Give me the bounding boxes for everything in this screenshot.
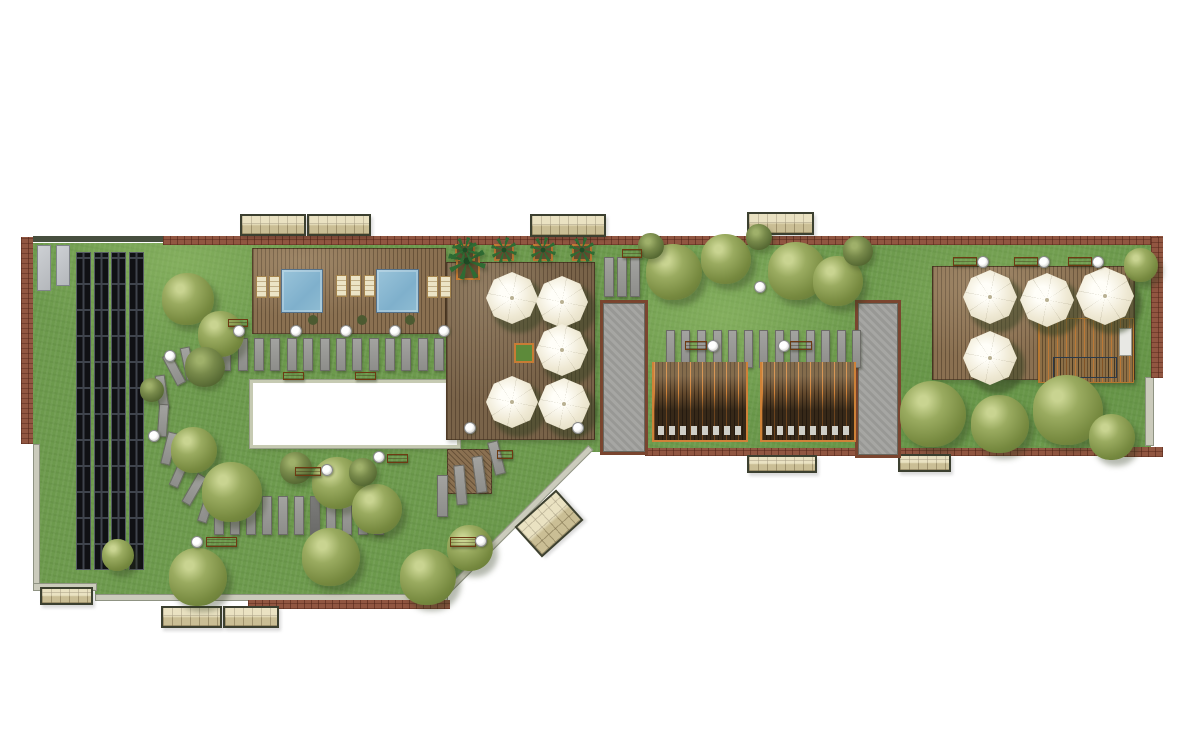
olive-tree <box>202 462 262 522</box>
jacuzzi-pool <box>281 269 323 313</box>
paver <box>270 338 280 371</box>
path-light <box>977 256 989 268</box>
speaker-dot <box>405 315 415 325</box>
olive-tree <box>447 525 493 571</box>
paver <box>401 338 411 371</box>
path-light <box>340 325 352 337</box>
olive-tree <box>971 395 1029 453</box>
olive-tree <box>701 234 751 284</box>
palm-canopy <box>530 237 556 263</box>
olive-tree <box>1089 414 1135 460</box>
roof-terrace-site-plan <box>0 0 1200 750</box>
olive-tree <box>349 458 377 486</box>
paver <box>262 496 272 535</box>
stone-pad <box>747 455 817 473</box>
bench <box>295 467 321 476</box>
olive-tree <box>1124 248 1158 282</box>
paver <box>254 338 264 371</box>
paver <box>617 257 627 297</box>
olive-tree <box>171 427 217 473</box>
path-light <box>438 325 450 337</box>
path-light <box>233 325 245 337</box>
olive-tree <box>185 347 225 387</box>
path-light <box>321 464 333 476</box>
lounger <box>364 275 375 297</box>
bench <box>387 454 408 463</box>
olive-tree <box>302 528 360 586</box>
ramp-panel <box>855 300 901 458</box>
stone-pad <box>898 454 951 472</box>
path-light <box>148 430 160 442</box>
olive-tree <box>352 484 402 534</box>
paver <box>437 475 448 517</box>
dark-edge <box>33 236 163 242</box>
brick-wall <box>21 237 33 444</box>
path-light <box>290 325 302 337</box>
path-light <box>754 281 766 293</box>
path-light <box>164 350 176 362</box>
lounger <box>440 276 451 298</box>
path-light <box>707 340 719 352</box>
paver <box>434 338 444 371</box>
path-edge <box>33 444 40 591</box>
solar-panel <box>76 252 91 570</box>
path-light <box>464 422 476 434</box>
stone-pad <box>530 214 606 237</box>
stone-block-row <box>766 426 850 435</box>
palm-canopy <box>569 237 595 263</box>
path-light <box>373 451 385 463</box>
paver <box>352 338 362 371</box>
stone-pad <box>240 214 306 236</box>
olive-tree <box>140 378 164 402</box>
paver <box>385 338 395 371</box>
path-light <box>778 340 790 352</box>
equipment-slab <box>37 245 51 291</box>
path-light <box>572 422 584 434</box>
jacuzzi-pool <box>376 269 419 313</box>
path-light <box>475 535 487 547</box>
paver <box>630 257 640 297</box>
bench <box>1014 257 1038 266</box>
lounger <box>256 276 267 298</box>
equipment-slab <box>56 245 70 286</box>
palm-canopy <box>491 237 517 263</box>
paver <box>336 338 346 371</box>
stone-pad <box>223 606 279 628</box>
ramp-panel <box>600 300 648 455</box>
solar-panel <box>94 252 109 570</box>
path-light <box>1038 256 1050 268</box>
bench <box>206 537 237 547</box>
paver <box>418 338 428 371</box>
stone-block-row <box>658 426 742 435</box>
olive-tree <box>900 381 966 447</box>
path-edge <box>1145 377 1154 446</box>
speaker-dot <box>357 315 367 325</box>
path-light <box>191 536 203 548</box>
lounger <box>350 275 361 297</box>
paver <box>369 338 379 371</box>
solar-panel <box>111 252 126 570</box>
stone-pad <box>40 587 93 605</box>
reflecting-pool <box>250 380 460 448</box>
paver <box>294 496 304 535</box>
solar-panel <box>129 252 144 570</box>
paver <box>287 338 297 371</box>
lounger <box>427 276 438 298</box>
path-light <box>389 325 401 337</box>
bench <box>355 372 376 380</box>
lounger <box>269 276 280 298</box>
paver <box>604 257 614 297</box>
bench <box>450 537 476 547</box>
bench <box>685 341 707 350</box>
bench <box>790 341 812 350</box>
bench <box>622 249 642 258</box>
bench <box>497 450 513 459</box>
olive-tree <box>746 224 772 250</box>
paver <box>320 338 330 371</box>
olive-tree <box>843 236 873 266</box>
bench <box>953 257 977 266</box>
bench <box>1068 257 1092 266</box>
green-planter <box>514 343 534 363</box>
palm-canopy <box>452 237 478 263</box>
olive-tree <box>102 539 134 571</box>
bench <box>283 372 304 380</box>
olive-tree <box>169 548 227 606</box>
path-light <box>1092 256 1104 268</box>
lounger <box>336 275 347 297</box>
stone-pad <box>161 606 222 628</box>
speaker-dot <box>308 315 318 325</box>
paver <box>303 338 313 371</box>
paver <box>278 496 288 535</box>
stone-pad <box>307 214 371 236</box>
